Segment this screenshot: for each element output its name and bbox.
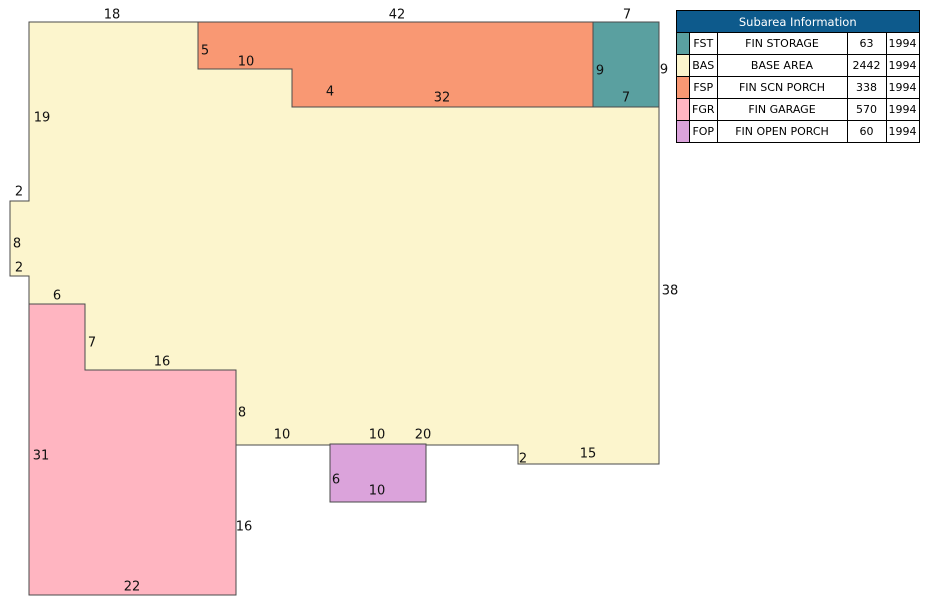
table-title: Subarea Information [677, 11, 920, 33]
subarea-description: BASE AREA [717, 55, 847, 77]
dimension-label: 8 [238, 406, 246, 421]
subarea-description: FIN STORAGE [717, 33, 847, 55]
table-row-fgr: FGRFIN GARAGE5701994 [677, 99, 920, 121]
dimension-label: 5 [201, 44, 209, 59]
subarea-area: 338 [847, 77, 886, 99]
subarea-description: FIN GARAGE [717, 99, 847, 121]
subarea-description: FIN SCN PORCH [717, 77, 847, 99]
table-row-bas: BASBASE AREA24421994 [677, 55, 920, 77]
subarea-year: 1994 [886, 33, 919, 55]
dimension-label: 18 [104, 8, 121, 23]
dimension-label: 9 [660, 63, 668, 78]
dimension-label: 22 [124, 580, 141, 595]
dimension-label: 7 [623, 8, 631, 23]
dimension-label: 38 [662, 284, 679, 299]
color-swatch-fop [677, 121, 690, 143]
dimension-label: 7 [88, 336, 96, 351]
subarea-code: FSP [690, 77, 718, 99]
dimension-label: 16 [236, 520, 253, 535]
dimension-label: 2 [15, 185, 23, 200]
subarea-code: BAS [690, 55, 718, 77]
dimension-label: 4 [326, 85, 334, 100]
dimension-label: 2 [15, 261, 23, 276]
dimension-label: 6 [53, 289, 61, 304]
subarea-year: 1994 [886, 121, 919, 143]
subarea-code: FOP [690, 121, 718, 143]
subarea-area: 570 [847, 99, 886, 121]
dimension-label: 10 [274, 428, 291, 443]
table-row-fsp: FSPFIN SCN PORCH3381994 [677, 77, 920, 99]
dimension-label: 7 [622, 91, 630, 106]
dimension-label: 31 [33, 449, 50, 464]
color-swatch-bas [677, 55, 690, 77]
dimension-label: 10 [369, 428, 386, 443]
dimension-label: 42 [389, 8, 406, 23]
dimension-label: 10 [238, 55, 255, 70]
subarea-year: 1994 [886, 99, 919, 121]
dimension-label: 15 [580, 447, 597, 462]
subarea-year: 1994 [886, 77, 919, 99]
subarea-area: 63 [847, 33, 886, 55]
dimension-label: 8 [13, 237, 21, 252]
table-row-fst: FSTFIN STORAGE631994 [677, 33, 920, 55]
subarea-code: FST [690, 33, 718, 55]
color-swatch-fsp [677, 77, 690, 99]
dimension-label: 20 [415, 428, 432, 443]
dimension-label: 9 [596, 64, 604, 79]
color-swatch-fst [677, 33, 690, 55]
subarea-description: FIN OPEN PORCH [717, 121, 847, 143]
table-header-row: Subarea Information [677, 11, 920, 33]
subarea-area: 2442 [847, 55, 886, 77]
table-row-fop: FOPFIN OPEN PORCH601994 [677, 121, 920, 143]
subarea-year: 1994 [886, 55, 919, 77]
subarea-code: FGR [690, 99, 718, 121]
subarea-table: Subarea Information FSTFIN STORAGE631994… [676, 10, 920, 143]
dimension-label: 32 [434, 91, 451, 106]
dimension-label: 10 [369, 484, 386, 499]
subarea-area: 60 [847, 121, 886, 143]
dimension-label: 16 [154, 355, 171, 370]
dimension-label: 19 [34, 111, 51, 126]
sketch-page: 1842751099432719282386716810102015312610… [0, 0, 925, 606]
dimension-label: 6 [332, 473, 340, 488]
color-swatch-fgr [677, 99, 690, 121]
dimension-label: 2 [519, 452, 527, 467]
